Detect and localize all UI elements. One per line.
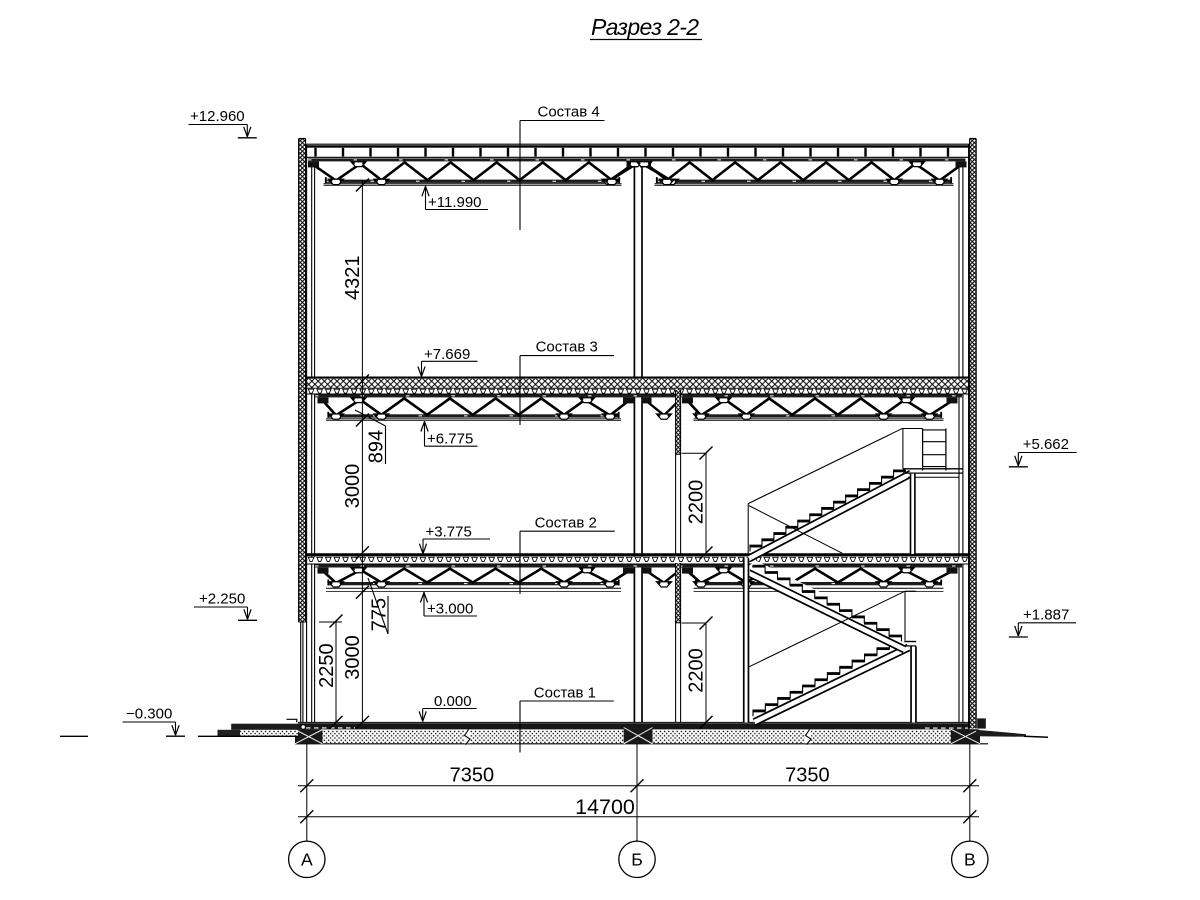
svg-text:894: 894 [366, 430, 388, 463]
svg-text:+5.662: +5.662 [1023, 436, 1069, 453]
svg-text:В: В [964, 849, 976, 869]
svg-text:2200: 2200 [686, 648, 708, 693]
svg-text:7350: 7350 [450, 765, 495, 787]
svg-text:А: А [301, 849, 313, 869]
svg-text:0.000: 0.000 [434, 693, 472, 710]
svg-text:+3.000: +3.000 [427, 601, 473, 618]
svg-text:7350: 7350 [785, 765, 830, 787]
svg-text:Состав 1: Состав 1 [534, 684, 596, 701]
svg-text:+1.887: +1.887 [1023, 606, 1069, 623]
svg-text:+6.775: +6.775 [427, 431, 473, 448]
svg-text:Б: Б [631, 849, 642, 869]
svg-text:4321: 4321 [342, 255, 364, 300]
svg-text:Состав 2: Состав 2 [535, 515, 597, 532]
svg-text:3000: 3000 [342, 464, 364, 509]
svg-text:2200: 2200 [686, 480, 708, 525]
svg-text:+7.669: +7.669 [424, 346, 470, 363]
svg-text:2250: 2250 [316, 643, 338, 688]
svg-text:−0.300: −0.300 [126, 706, 172, 723]
svg-text:Состав 4: Состав 4 [538, 104, 600, 121]
svg-text:775: 775 [368, 598, 390, 631]
svg-text:Разрез 2-2: Разрез 2-2 [591, 14, 699, 40]
svg-text:Состав 3: Состав 3 [536, 339, 598, 356]
svg-text:+12.960: +12.960 [190, 108, 245, 125]
svg-text:+2.250: +2.250 [199, 591, 245, 608]
svg-text:+3.775: +3.775 [426, 524, 472, 541]
svg-text:+11.990: +11.990 [428, 194, 482, 211]
svg-text:14700: 14700 [575, 795, 635, 819]
svg-text:3000: 3000 [342, 635, 364, 680]
